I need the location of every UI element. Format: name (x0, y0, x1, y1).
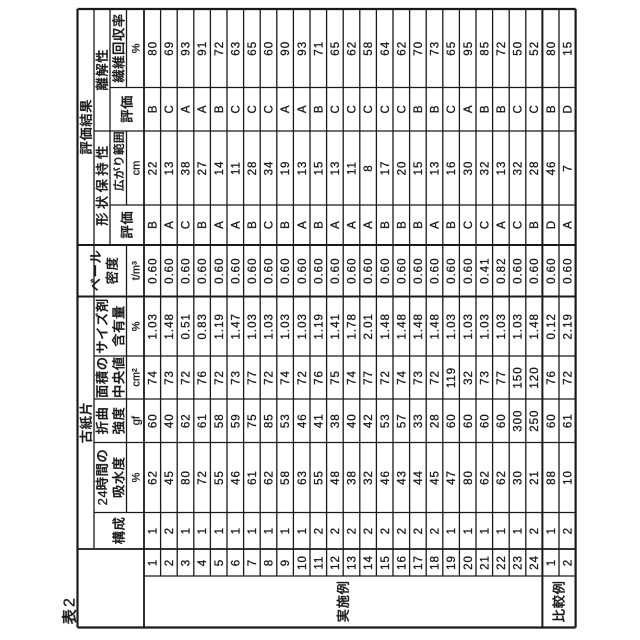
svg-text:14: 14 (214, 161, 226, 176)
svg-text:80: 80 (546, 41, 558, 56)
svg-text:300: 300 (513, 410, 525, 432)
svg-text:A: A (330, 221, 342, 229)
svg-text:13: 13 (347, 555, 359, 570)
svg-text:55: 55 (313, 470, 325, 485)
svg-text:2: 2 (380, 527, 392, 534)
svg-text:19: 19 (446, 555, 458, 570)
svg-text:0.51: 0.51 (181, 313, 193, 339)
svg-text:74: 74 (396, 370, 408, 385)
svg-text:t/m³: t/m³ (130, 261, 142, 280)
svg-text:1: 1 (214, 527, 226, 534)
svg-text:A: A (363, 221, 375, 229)
svg-text:18: 18 (430, 555, 442, 570)
svg-text:74: 74 (147, 370, 159, 385)
svg-text:69: 69 (164, 41, 176, 56)
svg-text:41: 41 (313, 413, 325, 428)
svg-text:119: 119 (446, 367, 458, 388)
svg-text:28: 28 (247, 161, 259, 176)
svg-text:73: 73 (479, 370, 491, 385)
svg-text:30: 30 (463, 161, 475, 176)
svg-text:60: 60 (264, 41, 276, 56)
svg-text:38: 38 (330, 413, 342, 428)
svg-text:28: 28 (529, 161, 541, 176)
svg-text:1.03: 1.03 (247, 313, 259, 339)
svg-text:120: 120 (529, 366, 541, 388)
svg-text:1.03: 1.03 (147, 313, 159, 339)
svg-text:45: 45 (430, 470, 442, 485)
svg-text:1.48: 1.48 (380, 313, 392, 339)
svg-text:62: 62 (347, 41, 359, 56)
svg-text:50: 50 (513, 41, 525, 56)
svg-text:90: 90 (280, 41, 292, 56)
svg-text:C: C (396, 105, 408, 113)
svg-text:13: 13 (297, 161, 309, 176)
svg-text:A: A (562, 221, 574, 229)
svg-text:72: 72 (496, 41, 508, 56)
svg-text:23: 23 (513, 555, 525, 570)
svg-text:11: 11 (230, 161, 242, 175)
svg-text:B: B (479, 105, 491, 113)
svg-text:76: 76 (313, 370, 325, 385)
svg-text:2: 2 (562, 559, 574, 566)
svg-text:1.41: 1.41 (330, 313, 342, 339)
svg-text:C: C (529, 105, 541, 113)
svg-text:47: 47 (446, 470, 458, 485)
svg-text:91: 91 (197, 41, 209, 56)
svg-text:0.60: 0.60 (313, 258, 325, 284)
svg-text:1: 1 (197, 527, 209, 534)
svg-text:77: 77 (247, 370, 259, 385)
svg-text:15: 15 (562, 41, 574, 56)
svg-text:72: 72 (264, 370, 276, 385)
svg-text:13: 13 (496, 161, 508, 176)
svg-text:2: 2 (62, 598, 79, 607)
svg-text:77: 77 (496, 370, 508, 385)
svg-text:1.48: 1.48 (164, 313, 176, 339)
svg-text:1.78: 1.78 (347, 313, 359, 339)
svg-text:14: 14 (363, 555, 375, 570)
svg-text:A: A (280, 105, 292, 113)
svg-text:17: 17 (380, 161, 392, 176)
svg-text:65: 65 (247, 41, 259, 56)
svg-text:80: 80 (181, 470, 193, 485)
svg-text:93: 93 (297, 41, 309, 56)
svg-text:12: 12 (330, 555, 342, 570)
svg-text:77: 77 (363, 370, 375, 385)
svg-text:40: 40 (164, 413, 176, 428)
svg-text:0.60: 0.60 (247, 258, 259, 284)
svg-text:46: 46 (380, 470, 392, 485)
svg-text:0.60: 0.60 (396, 258, 408, 284)
svg-text:1.48: 1.48 (430, 313, 442, 339)
svg-text:8: 8 (264, 559, 276, 566)
svg-text:7: 7 (247, 559, 259, 566)
svg-text:32: 32 (513, 161, 525, 176)
svg-text:A: A (230, 221, 242, 229)
svg-text:15: 15 (380, 555, 392, 570)
svg-text:1.03: 1.03 (297, 313, 309, 339)
svg-text:0.60: 0.60 (264, 258, 276, 284)
svg-text:73: 73 (164, 370, 176, 385)
svg-text:C: C (380, 105, 392, 113)
svg-text:C: C (330, 105, 342, 113)
svg-text:C: C (513, 105, 525, 113)
svg-text:0.60: 0.60 (330, 258, 342, 284)
svg-text:A: A (496, 221, 508, 229)
svg-text:C: C (513, 221, 525, 229)
svg-text:38: 38 (181, 161, 193, 176)
svg-text:C: C (264, 221, 276, 229)
svg-text:57: 57 (396, 413, 408, 428)
svg-text:53: 53 (380, 413, 392, 428)
svg-text:B: B (380, 221, 392, 229)
svg-text:9: 9 (280, 559, 292, 566)
svg-text:1.03: 1.03 (463, 313, 475, 339)
svg-text:33: 33 (413, 413, 425, 428)
svg-text:58: 58 (214, 413, 226, 428)
svg-text:59: 59 (230, 413, 242, 428)
svg-text:B: B (430, 105, 442, 113)
svg-text:15: 15 (313, 161, 325, 176)
svg-text:1: 1 (280, 527, 292, 534)
svg-text:0.60: 0.60 (562, 258, 574, 284)
svg-text:72: 72 (297, 370, 309, 385)
svg-text:0.60: 0.60 (413, 258, 425, 284)
svg-text:C: C (164, 105, 176, 113)
svg-text:63: 63 (230, 41, 242, 56)
svg-text:0.60: 0.60 (463, 258, 475, 284)
svg-text:88: 88 (546, 470, 558, 485)
svg-text:0.60: 0.60 (181, 258, 193, 284)
svg-text:60: 60 (496, 413, 508, 428)
svg-text:22: 22 (496, 555, 508, 570)
svg-text:60: 60 (446, 413, 458, 428)
svg-text:0.12: 0.12 (546, 313, 558, 339)
svg-text:C: C (347, 105, 359, 113)
svg-text:1: 1 (297, 527, 309, 534)
svg-text:38: 38 (347, 470, 359, 485)
svg-text:0.60: 0.60 (230, 258, 242, 284)
svg-text:0.60: 0.60 (430, 258, 442, 284)
svg-text:B: B (496, 105, 508, 113)
svg-text:17: 17 (413, 555, 425, 570)
svg-text:32: 32 (479, 161, 491, 176)
svg-text:1: 1 (463, 527, 475, 534)
svg-text:B: B (546, 105, 558, 113)
svg-text:1.03: 1.03 (513, 313, 525, 339)
svg-text:61: 61 (562, 413, 574, 428)
svg-text:52: 52 (529, 41, 541, 56)
svg-text:0.60: 0.60 (529, 258, 541, 284)
svg-text:21: 21 (479, 555, 491, 570)
svg-text:64: 64 (380, 41, 392, 56)
svg-text:1.03: 1.03 (280, 313, 292, 339)
svg-text:1.03: 1.03 (479, 313, 491, 339)
svg-text:27: 27 (197, 161, 209, 176)
svg-text:A: A (214, 221, 226, 229)
svg-text:2: 2 (313, 527, 325, 534)
svg-text:72: 72 (562, 370, 574, 385)
svg-text:2: 2 (396, 527, 408, 534)
svg-text:1.47: 1.47 (230, 313, 242, 339)
svg-text:150: 150 (513, 366, 525, 388)
svg-text:1: 1 (147, 559, 159, 566)
svg-text:2: 2 (164, 559, 176, 566)
svg-text:60: 60 (463, 413, 475, 428)
svg-text:C: C (363, 105, 375, 113)
svg-text:1.03: 1.03 (496, 313, 508, 339)
svg-text:76: 76 (546, 370, 558, 385)
svg-text:72: 72 (181, 370, 193, 385)
svg-text:0.41: 0.41 (479, 258, 491, 284)
svg-text:72: 72 (214, 41, 226, 56)
svg-text:2.19: 2.19 (562, 313, 574, 339)
svg-text:1: 1 (147, 527, 159, 534)
svg-text:61: 61 (197, 413, 209, 428)
svg-text:D: D (546, 221, 558, 229)
svg-text:13: 13 (330, 161, 342, 176)
svg-text:cm²: cm² (130, 368, 142, 387)
svg-text:1.03: 1.03 (446, 313, 458, 339)
svg-text:D: D (562, 105, 574, 113)
svg-text:C: C (264, 105, 276, 113)
svg-text:1.03: 1.03 (264, 313, 276, 339)
svg-text:B: B (147, 221, 159, 229)
svg-text:75: 75 (247, 413, 259, 428)
svg-text:%: % (130, 43, 142, 53)
svg-text:44: 44 (413, 470, 425, 485)
svg-text:93: 93 (181, 41, 193, 56)
svg-text:A: A (297, 221, 309, 229)
svg-text:16: 16 (446, 161, 458, 176)
svg-text:5: 5 (214, 559, 226, 566)
svg-text:A: A (181, 105, 193, 113)
svg-text:43: 43 (396, 470, 408, 485)
svg-text:A: A (430, 221, 442, 229)
svg-text:A: A (197, 105, 209, 113)
svg-text:4: 4 (197, 559, 209, 566)
svg-text:58: 58 (280, 470, 292, 485)
svg-text:80: 80 (147, 41, 159, 56)
svg-text:42: 42 (363, 413, 375, 428)
svg-text:21: 21 (529, 470, 541, 485)
svg-text:22: 22 (147, 161, 159, 176)
svg-text:2: 2 (347, 527, 359, 534)
svg-text:6: 6 (230, 559, 242, 566)
svg-text:B: B (147, 105, 159, 113)
svg-text:1: 1 (181, 527, 193, 534)
svg-text:74: 74 (347, 370, 359, 385)
svg-text:B: B (446, 221, 458, 229)
svg-text:10: 10 (562, 470, 574, 485)
svg-text:13: 13 (164, 161, 176, 176)
svg-text:46: 46 (297, 413, 309, 428)
svg-text:71: 71 (313, 41, 325, 56)
svg-text:15: 15 (413, 161, 425, 176)
svg-text:1: 1 (247, 527, 259, 534)
svg-text:11: 11 (347, 161, 359, 175)
svg-text:0.60: 0.60 (164, 258, 176, 284)
svg-text:B: B (247, 221, 259, 229)
svg-text:B: B (313, 221, 325, 229)
svg-text:C: C (181, 221, 193, 229)
svg-text:1: 1 (546, 527, 558, 534)
svg-text:45: 45 (164, 470, 176, 485)
svg-text:13: 13 (430, 161, 442, 176)
svg-text:B: B (413, 221, 425, 229)
svg-text:48: 48 (330, 470, 342, 485)
svg-text:62: 62 (181, 413, 193, 428)
svg-text:B: B (396, 221, 408, 229)
svg-text:B: B (313, 105, 325, 113)
svg-text:62: 62 (147, 470, 159, 485)
svg-text:0.83: 0.83 (197, 313, 209, 339)
svg-text:250: 250 (529, 410, 541, 432)
svg-text:1: 1 (513, 527, 525, 534)
svg-text:C: C (230, 105, 242, 113)
svg-text:34: 34 (264, 161, 276, 176)
svg-text:3: 3 (181, 559, 193, 566)
svg-text:A: A (347, 221, 359, 229)
svg-text:74: 74 (280, 370, 292, 385)
svg-text:1.48: 1.48 (396, 313, 408, 339)
svg-text:2: 2 (330, 527, 342, 534)
svg-text:1: 1 (546, 559, 558, 566)
svg-text:B: B (197, 221, 209, 229)
svg-text:72: 72 (430, 370, 442, 385)
svg-text:32: 32 (363, 470, 375, 485)
svg-text:24: 24 (529, 555, 541, 570)
svg-text:1: 1 (264, 527, 276, 534)
svg-text:1: 1 (230, 527, 242, 534)
svg-text:%: % (130, 321, 142, 331)
svg-text:58: 58 (363, 41, 375, 56)
svg-text:73: 73 (430, 41, 442, 56)
svg-text:2: 2 (430, 527, 442, 534)
svg-text:gf: gf (130, 415, 142, 425)
svg-text:62: 62 (264, 470, 276, 485)
svg-text:40: 40 (347, 413, 359, 428)
svg-text:0.60: 0.60 (297, 258, 309, 284)
svg-text:53: 53 (280, 413, 292, 428)
svg-text:1: 1 (496, 527, 508, 534)
svg-text:7: 7 (562, 164, 574, 171)
svg-text:55: 55 (214, 470, 226, 485)
svg-text:A: A (463, 105, 475, 113)
svg-text:A: A (164, 221, 176, 229)
svg-text:0.60: 0.60 (147, 258, 159, 284)
svg-text:B: B (280, 221, 292, 229)
svg-text:2: 2 (562, 527, 574, 534)
svg-text:70: 70 (413, 41, 425, 56)
svg-text:cm: cm (130, 161, 142, 176)
svg-text:95: 95 (463, 41, 475, 56)
svg-text:0.60: 0.60 (347, 258, 359, 284)
svg-text:16: 16 (396, 555, 408, 570)
svg-text:C: C (463, 221, 475, 229)
svg-text:0.60: 0.60 (546, 258, 558, 284)
svg-text:0.82: 0.82 (496, 258, 508, 284)
svg-text:75: 75 (330, 370, 342, 385)
svg-text:B: B (214, 105, 226, 113)
svg-text:1: 1 (479, 527, 491, 534)
svg-text:76: 76 (197, 370, 209, 385)
svg-text:61: 61 (247, 470, 259, 485)
svg-text:20: 20 (463, 555, 475, 570)
svg-text:0.60: 0.60 (280, 258, 292, 284)
svg-text:1: 1 (446, 527, 458, 534)
svg-text:80: 80 (463, 470, 475, 485)
svg-text:B: B (529, 221, 541, 229)
svg-text:C: C (247, 105, 259, 113)
svg-text:62: 62 (479, 470, 491, 485)
svg-text:46: 46 (546, 161, 558, 176)
svg-text:1.48: 1.48 (529, 313, 541, 339)
svg-text:28: 28 (430, 413, 442, 428)
svg-text:72: 72 (197, 470, 209, 485)
svg-text:11: 11 (313, 556, 325, 570)
svg-text:0.60: 0.60 (380, 258, 392, 284)
svg-text:2: 2 (529, 527, 541, 534)
svg-text:85: 85 (479, 41, 491, 56)
svg-text:2: 2 (413, 527, 425, 534)
svg-text:0.60: 0.60 (446, 258, 458, 284)
svg-text:0.60: 0.60 (363, 258, 375, 284)
svg-text:60: 60 (147, 413, 159, 428)
svg-text:30: 30 (513, 470, 525, 485)
svg-text:1.19: 1.19 (214, 313, 226, 339)
svg-text:B: B (413, 105, 425, 113)
svg-text:85: 85 (264, 413, 276, 428)
svg-text:1.48: 1.48 (413, 313, 425, 339)
svg-text:65: 65 (330, 41, 342, 56)
svg-text:2: 2 (164, 527, 176, 534)
svg-text:%: % (130, 472, 142, 482)
svg-text:72: 72 (380, 370, 392, 385)
svg-text:0.60: 0.60 (214, 258, 226, 284)
svg-text:10: 10 (297, 555, 309, 570)
svg-text:62: 62 (496, 470, 508, 485)
svg-text:63: 63 (297, 470, 309, 485)
svg-text:C: C (479, 221, 491, 229)
svg-text:19: 19 (280, 161, 292, 176)
svg-text:72: 72 (214, 370, 226, 385)
svg-text:32: 32 (463, 370, 475, 385)
svg-text:0.60: 0.60 (513, 258, 525, 284)
svg-text:C: C (446, 105, 458, 113)
svg-text:2: 2 (363, 527, 375, 534)
svg-text:60: 60 (546, 413, 558, 428)
svg-text:A: A (297, 105, 309, 113)
svg-text:24: 24 (95, 490, 110, 505)
svg-text:73: 73 (230, 370, 242, 385)
svg-text:73: 73 (413, 370, 425, 385)
svg-text:60: 60 (479, 413, 491, 428)
svg-text:1.19: 1.19 (313, 313, 325, 339)
svg-text:62: 62 (396, 41, 408, 56)
svg-text:8: 8 (363, 164, 375, 171)
svg-text:20: 20 (396, 161, 408, 176)
svg-text:2.01: 2.01 (363, 313, 375, 339)
svg-text:46: 46 (230, 470, 242, 485)
svg-text:65: 65 (446, 41, 458, 56)
svg-text:0.60: 0.60 (197, 258, 209, 284)
